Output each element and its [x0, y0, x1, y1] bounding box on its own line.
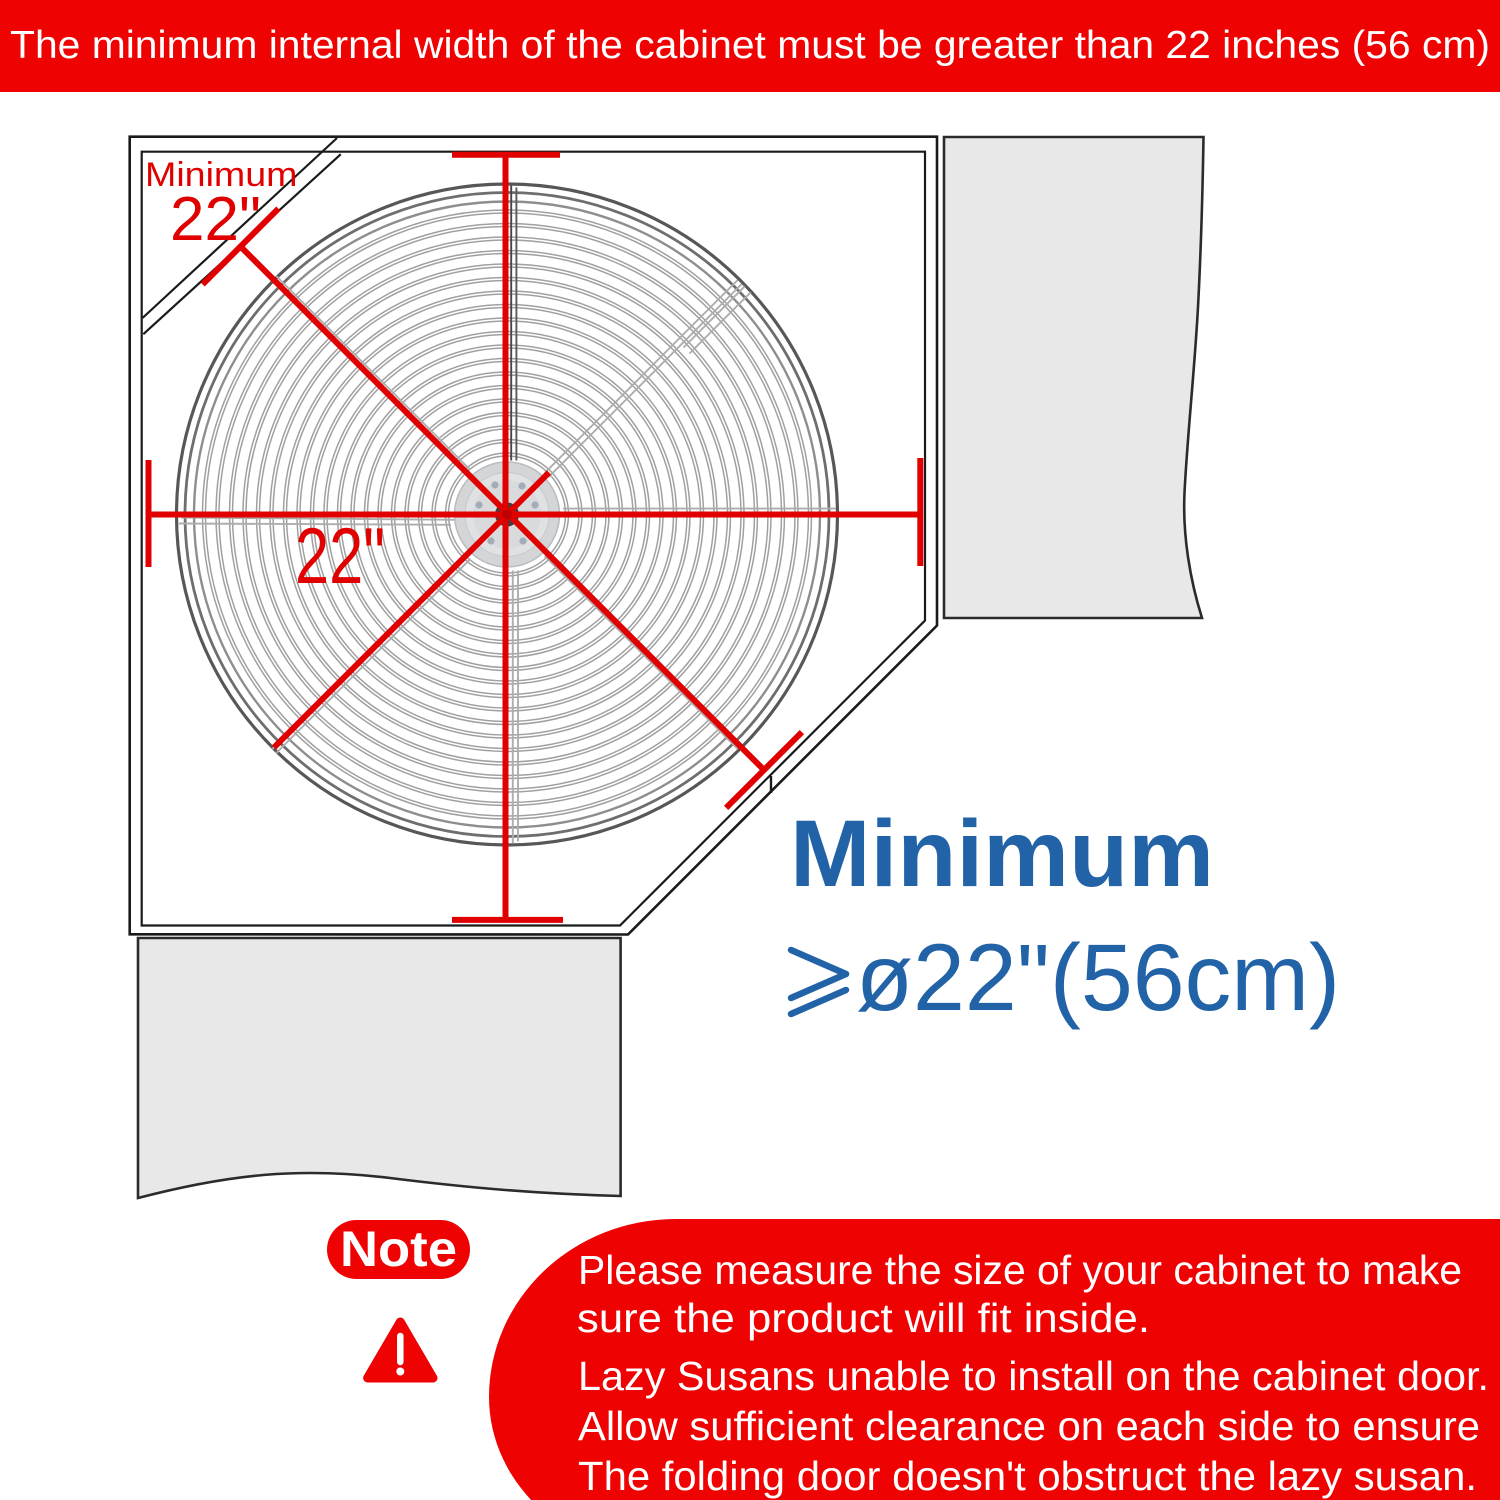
- svg-text:Note: Note: [340, 1221, 457, 1277]
- svg-text:The minimum internal width of: The minimum internal width of the cabine…: [10, 24, 1490, 67]
- svg-text:Lazy Susans unable to install: Lazy Susans unable to install on the cab…: [578, 1353, 1489, 1399]
- svg-text:Please measure the size of you: Please measure the size of your cabinet …: [578, 1247, 1462, 1293]
- svg-text:sure the product will fit insi: sure the product will fit inside.: [577, 1295, 1150, 1341]
- svg-text:ø22"(56cm): ø22"(56cm): [856, 925, 1340, 1031]
- svg-text:22": 22": [170, 185, 261, 254]
- svg-text:The folding door doesn't obstr: The folding door doesn't obstruct the la…: [578, 1453, 1477, 1499]
- svg-text:Allow sufficient clearance on: Allow sufficient clearance on each side …: [578, 1403, 1480, 1449]
- svg-text:22": 22": [295, 511, 385, 600]
- svg-text:Minimum: Minimum: [790, 801, 1214, 907]
